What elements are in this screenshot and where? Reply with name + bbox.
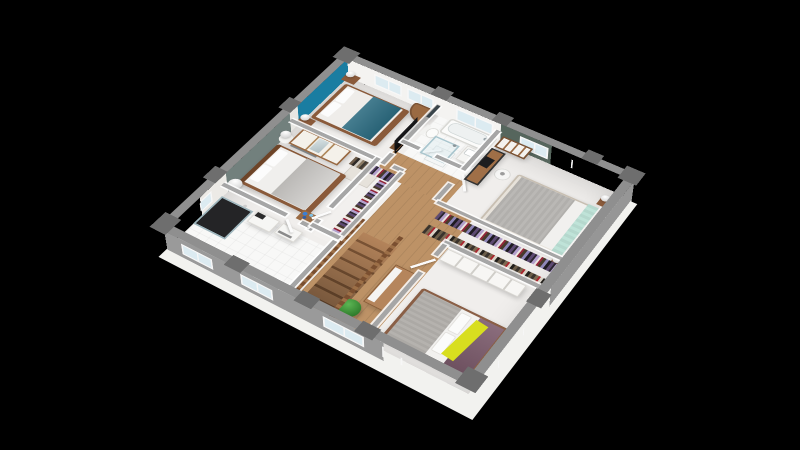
floor-plan	[159, 69, 636, 407]
render-stage	[0, 0, 800, 450]
scene-3d	[0, 0, 800, 450]
